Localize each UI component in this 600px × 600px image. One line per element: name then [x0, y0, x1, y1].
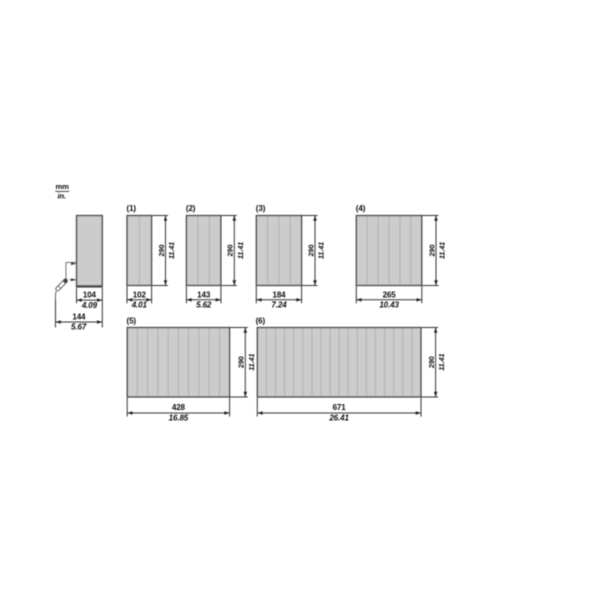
svg-text:290: 290 — [427, 245, 436, 257]
svg-text:(1): (1) — [127, 204, 137, 213]
svg-text:4.09: 4.09 — [81, 301, 98, 310]
svg-text:11.41: 11.41 — [247, 354, 256, 371]
svg-text:143: 143 — [197, 290, 211, 299]
svg-text:290: 290 — [306, 245, 315, 257]
svg-text:104: 104 — [83, 291, 97, 300]
svg-text:5.67: 5.67 — [71, 323, 87, 332]
svg-text:11.41: 11.41 — [438, 242, 447, 259]
svg-text:16.85: 16.85 — [169, 413, 189, 422]
svg-text:in.: in. — [58, 191, 67, 200]
svg-text:290: 290 — [427, 356, 436, 368]
svg-text:(2): (2) — [186, 204, 196, 213]
svg-text:428: 428 — [172, 403, 186, 412]
svg-text:7.24: 7.24 — [271, 301, 287, 310]
svg-text:(5): (5) — [127, 316, 137, 325]
svg-text:290: 290 — [157, 245, 166, 257]
svg-text:265: 265 — [383, 290, 397, 299]
svg-text:10.43: 10.43 — [379, 301, 399, 310]
svg-text:26.41: 26.41 — [328, 413, 349, 422]
svg-text:290: 290 — [226, 245, 235, 257]
svg-text:11.41: 11.41 — [437, 354, 446, 371]
svg-text:5.62: 5.62 — [196, 301, 212, 310]
svg-text:671: 671 — [333, 403, 347, 412]
svg-text:184: 184 — [272, 290, 286, 299]
svg-text:(4): (4) — [356, 204, 366, 213]
svg-text:4.01: 4.01 — [131, 301, 148, 310]
svg-text:11.41: 11.41 — [167, 242, 176, 259]
svg-text:(6): (6) — [256, 316, 266, 325]
svg-text:144: 144 — [72, 312, 86, 321]
svg-text:11.41: 11.41 — [236, 242, 245, 259]
svg-text:11.41: 11.41 — [317, 242, 326, 259]
svg-text:290: 290 — [237, 356, 246, 368]
svg-text:(3): (3) — [256, 204, 266, 213]
svg-text:102: 102 — [133, 290, 147, 299]
svg-text:mm: mm — [56, 182, 70, 191]
